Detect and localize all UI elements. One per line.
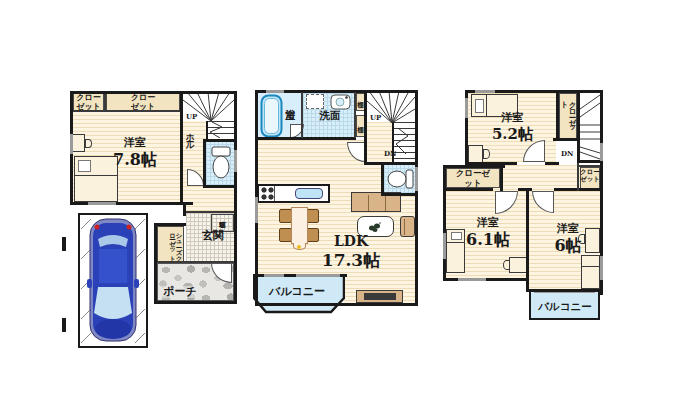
gate-post: [62, 318, 66, 332]
wall: [545, 162, 559, 165]
f1-desk-chair: [85, 139, 92, 148]
wall: [381, 165, 384, 196]
wall: [500, 165, 503, 191]
gate-post: [62, 237, 66, 251]
partition: [301, 92, 303, 138]
wall: [70, 91, 237, 94]
wall: [556, 90, 559, 141]
window-mark: [88, 202, 116, 205]
f1-genkan-label: 玄関: [193, 230, 233, 242]
f2-armchair: [400, 216, 415, 237]
window-mark: [475, 90, 495, 93]
window-mark: [600, 256, 603, 280]
f1-bed-divider: [75, 175, 117, 176]
f2-dining-table: [291, 207, 308, 244]
window-mark: [266, 90, 284, 93]
wall: [255, 303, 418, 306]
f1-hall-label: ホール: [186, 127, 195, 165]
f2-balcony-label: バルコニー: [266, 286, 328, 298]
f2-up-label: UP: [370, 114, 381, 122]
sofa-seam: [368, 195, 369, 211]
wall: [203, 139, 206, 188]
f1-bedroom-size: 7.8帖: [113, 150, 157, 171]
wall: [364, 90, 367, 165]
f3-desk-b-chair: [503, 260, 510, 270]
f2-tv-screen: [364, 293, 396, 300]
f3-room-a-size: 5.2帖: [492, 125, 533, 144]
f3-stairs-lines: [580, 93, 600, 160]
window-mark: [458, 278, 486, 281]
f2-dn-label: DN: [384, 150, 396, 158]
f1-desk: [71, 134, 85, 152]
f1-bedroom-name: 洋室: [124, 135, 146, 150]
wall: [553, 138, 580, 141]
f3-room-c-label: 洋室 6帖: [543, 220, 593, 258]
window-mark: [600, 143, 603, 161]
f2-washing-machine: [306, 94, 324, 109]
sofa-seam: [385, 195, 386, 211]
f3-desk-a-chair: [483, 149, 490, 159]
wall: [443, 165, 505, 168]
window-mark: [264, 274, 284, 277]
window-mark: [415, 167, 418, 191]
wall: [443, 188, 493, 191]
f3-closet-right-label: クローゼット: [580, 169, 600, 184]
window-mark: [465, 98, 468, 118]
f1-porch-line: [157, 261, 234, 263]
wall: [203, 185, 237, 188]
f3-balcony-label: バルコニー: [534, 301, 596, 312]
wall: [180, 91, 183, 205]
wall: [415, 90, 418, 306]
f1-toilet-icon: [210, 146, 232, 180]
partition: [354, 92, 356, 138]
wall: [518, 188, 532, 191]
f1-closet-line: [73, 110, 180, 112]
wall: [526, 289, 603, 292]
window-mark: [70, 134, 73, 154]
wall: [381, 193, 418, 196]
f1-genkan-step-line: [186, 211, 237, 213]
wall: [154, 301, 237, 304]
wall: [203, 139, 237, 142]
floor-plan-canvas: クローゼット クローゼット 洋室 7.8帖 UP ホール 下駄箱 玄関 シューズ…: [0, 0, 680, 400]
wall: [234, 211, 237, 304]
wall: [257, 137, 356, 140]
window-mark: [255, 197, 258, 223]
f2-bathtub: [260, 94, 283, 138]
f1-bed-pillow: [78, 160, 91, 172]
f3-closet-top-label: クローゼット: [560, 96, 576, 136]
window-mark: [234, 150, 237, 172]
f1-closet-a-label: クローゼット: [74, 93, 103, 111]
f3-desk-b: [509, 257, 527, 273]
f2-ldk-name: LDK: [334, 233, 368, 249]
wall: [577, 90, 580, 163]
f2-ldk-size: 17.3帖: [322, 249, 380, 272]
f3-room-a-name: 洋室: [502, 110, 524, 125]
f2-sink-icon: [330, 94, 351, 110]
wall: [364, 162, 418, 165]
f2-plant-icon: [368, 221, 382, 233]
f2-shelf-a-label: 棚: [357, 96, 364, 108]
f2-toilet-icon: [387, 168, 414, 190]
f2-table-flower: [297, 245, 301, 249]
f3-room-b-label: 洋室 6.1帖: [458, 214, 518, 252]
wall: [526, 191, 529, 292]
f1-car: [80, 215, 146, 346]
f1-stair-break-line: [208, 122, 232, 138]
f1-closet-divider: [104, 92, 106, 111]
f3-room-b-name: 洋室: [477, 215, 499, 230]
wall: [154, 223, 186, 226]
window-mark: [296, 274, 340, 277]
f3-desk-a: [468, 145, 483, 163]
partition: [577, 163, 579, 191]
f1-porch-label: ポーチ: [158, 286, 202, 298]
wall: [154, 223, 157, 304]
f2-tv-board: [356, 290, 403, 303]
f3-closet-left-label: クローゼット: [453, 169, 493, 189]
f3-bed-c: [581, 255, 600, 289]
wall: [443, 165, 446, 281]
f2-stove-icon: [259, 186, 275, 201]
f1-up-label: UP: [186, 113, 197, 121]
partition: [577, 165, 600, 167]
f3-dn-label: DN: [561, 150, 573, 158]
f2-ldk-label: LDK 17.3帖: [319, 233, 383, 271]
f2-shelf-b-label: 棚: [357, 121, 364, 133]
bed-divider: [582, 266, 599, 267]
window-mark: [443, 233, 446, 259]
f3-room-a-label: 洋室 5.2帖: [480, 108, 545, 146]
f1-closet-b-label: クローゼット: [128, 93, 158, 111]
f3-room-b-size: 6.1帖: [466, 230, 510, 251]
f2-washroom-label: 洗面: [308, 110, 352, 121]
f2-kitchen-sink: [295, 188, 323, 199]
armchair-seam: [404, 219, 405, 235]
f2-stair-break-line: [394, 128, 414, 158]
f1-bedroom-label: 洋室 7.8帖: [100, 134, 170, 172]
f1-shoes-closet-label: シューズクローゼット: [160, 229, 182, 260]
f3-room-c-size: 6帖: [554, 236, 581, 257]
wall: [465, 162, 517, 165]
f3-room-c-name: 洋室: [557, 221, 579, 236]
